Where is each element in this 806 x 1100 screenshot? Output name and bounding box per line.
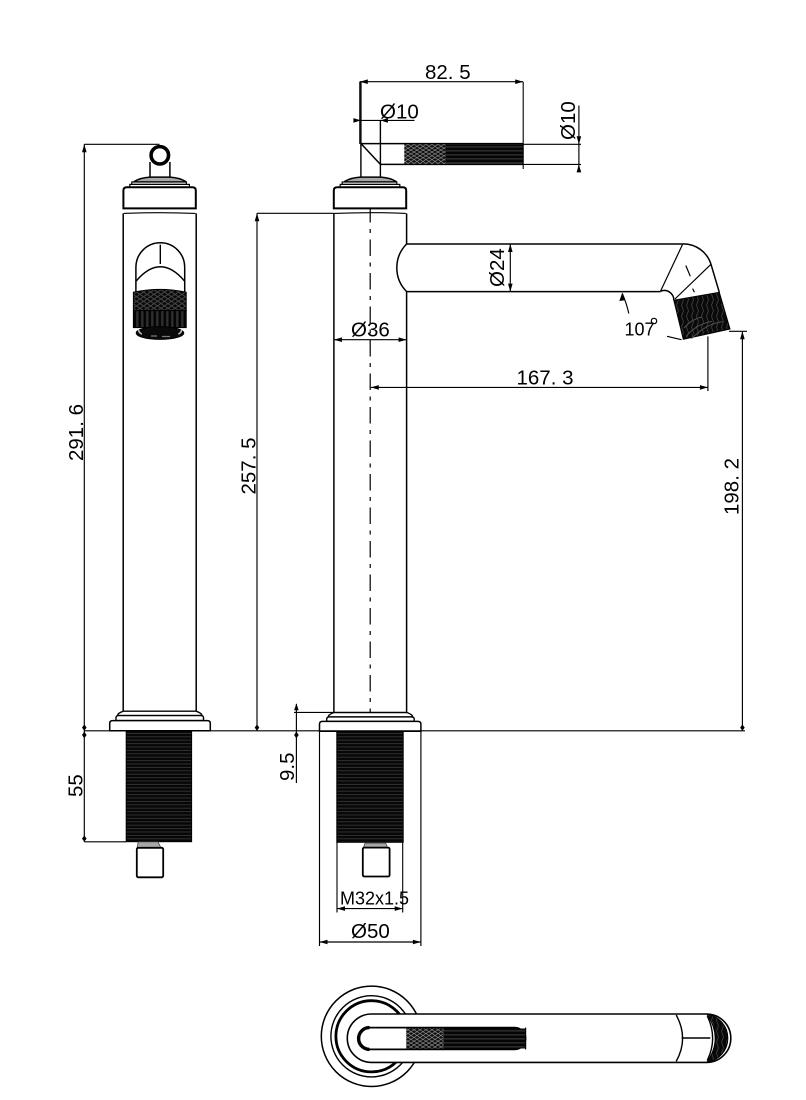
svg-text:Ø50: Ø50	[351, 920, 390, 943]
svg-text:55: 55	[65, 774, 88, 797]
svg-text:107: 107	[625, 320, 655, 340]
svg-text:Ø24: Ø24	[486, 248, 509, 287]
svg-text:Ø10: Ø10	[557, 101, 580, 140]
svg-text:257. 5: 257. 5	[238, 438, 261, 495]
svg-text:291. 6: 291. 6	[65, 404, 88, 461]
svg-text:Ø10: Ø10	[380, 101, 419, 124]
svg-text:198. 2: 198. 2	[721, 458, 744, 515]
svg-text:167. 3: 167. 3	[517, 367, 574, 390]
svg-text:82. 5: 82. 5	[425, 61, 471, 84]
svg-text:9.5: 9.5	[276, 753, 299, 782]
svg-text:M32x1.5: M32x1.5	[340, 889, 409, 909]
svg-text:Ø36: Ø36	[351, 319, 390, 342]
